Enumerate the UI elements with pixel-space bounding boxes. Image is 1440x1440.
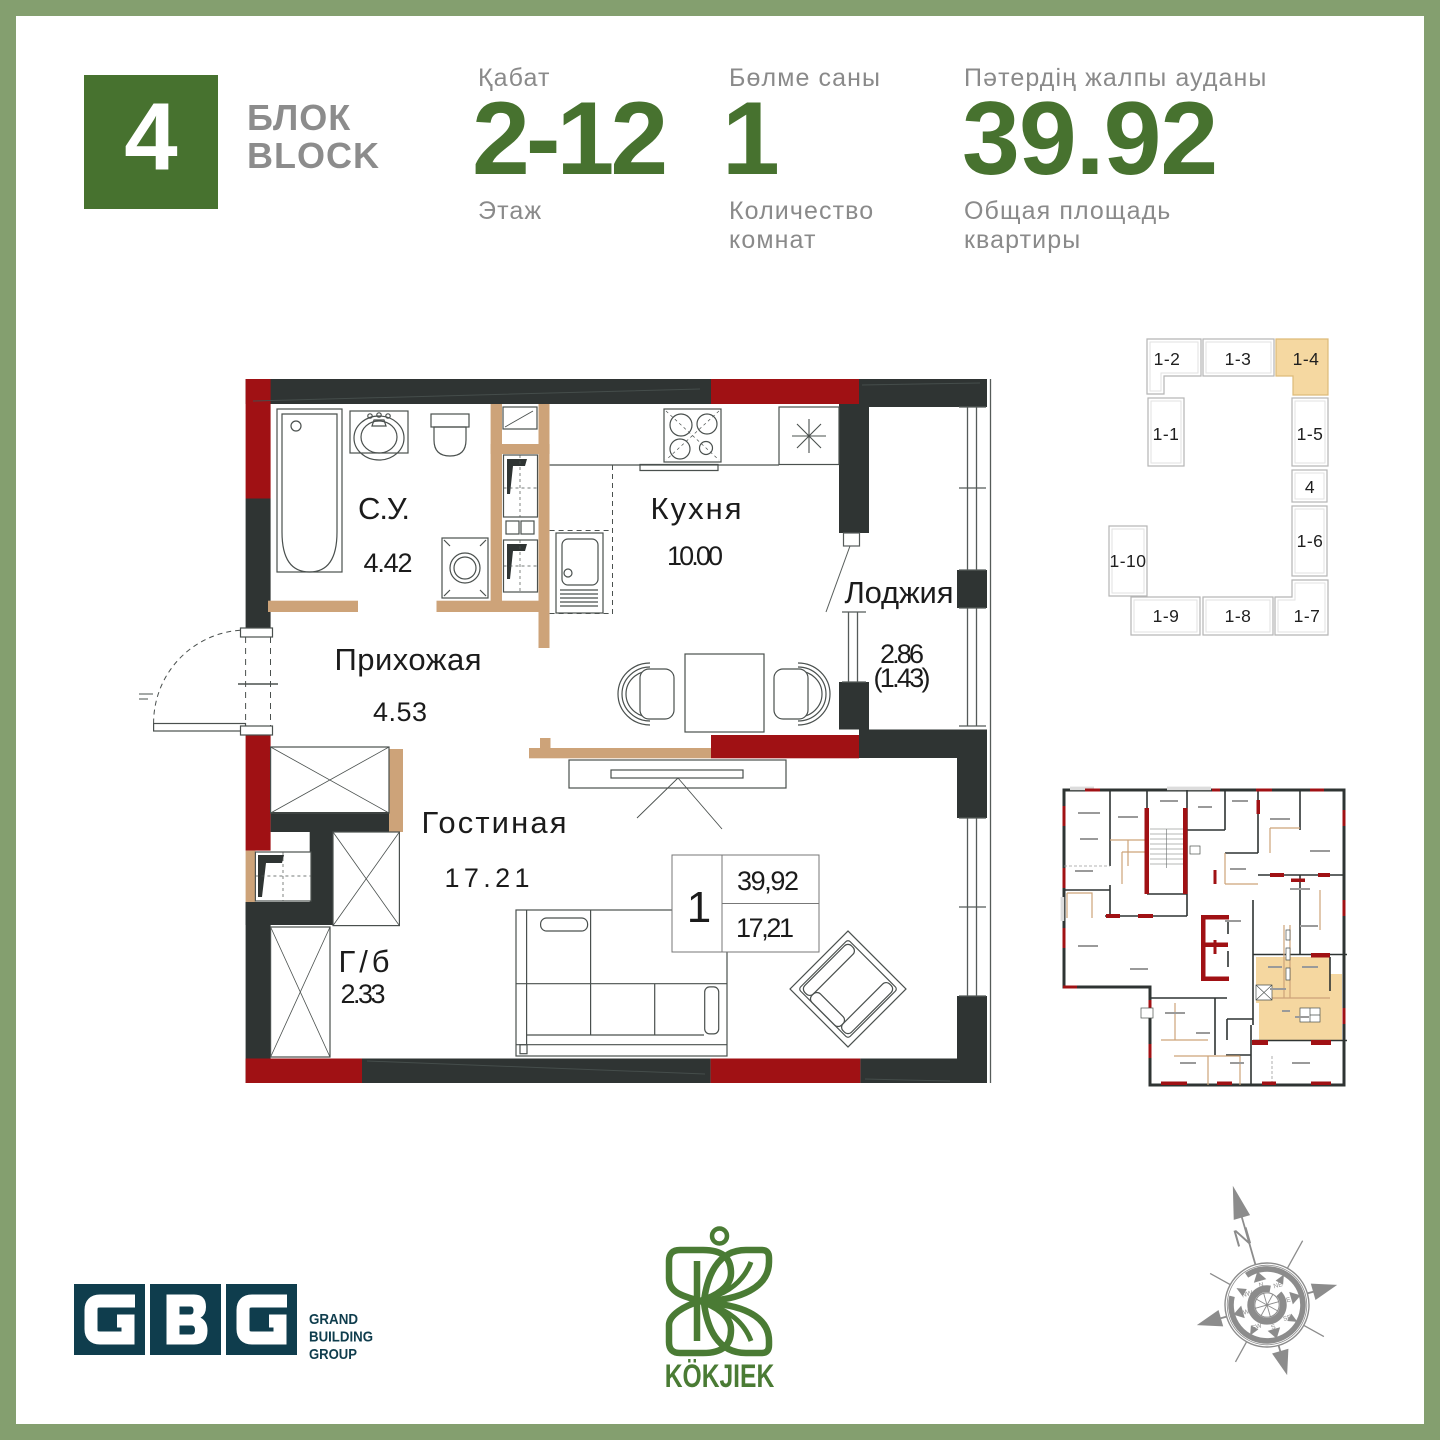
svg-text:2.33: 2.33 — [341, 979, 386, 1009]
svg-text:Лоджия: Лоджия — [845, 575, 954, 610]
svg-text:N: N — [1258, 1281, 1265, 1289]
svg-text:BUILDING: BUILDING — [309, 1329, 373, 1346]
svg-text:4.42: 4.42 — [364, 548, 413, 578]
svg-text:1-4: 1-4 — [1293, 349, 1320, 369]
svg-text:Г/б: Г/б — [339, 944, 390, 979]
svg-text:1-9: 1-9 — [1153, 606, 1180, 626]
svg-text:С.У.: С.У. — [358, 491, 410, 526]
svg-text:1-6: 1-6 — [1297, 531, 1324, 551]
svg-text:1-3: 1-3 — [1225, 349, 1252, 369]
svg-text:1-8: 1-8 — [1225, 606, 1252, 626]
svg-text:Гостиная: Гостиная — [422, 805, 567, 840]
svg-text:4.53: 4.53 — [373, 697, 427, 727]
svg-text:1-7: 1-7 — [1294, 606, 1321, 626]
svg-text:KÖKJIEK: KÖKJIEK — [665, 1359, 775, 1395]
svg-text:GRAND: GRAND — [309, 1311, 358, 1328]
svg-text:Кухня: Кухня — [651, 491, 742, 526]
svg-text:1-1: 1-1 — [1153, 424, 1180, 444]
svg-text:1-5: 1-5 — [1297, 424, 1324, 444]
svg-text:4: 4 — [1305, 477, 1315, 497]
svg-text:17,21: 17,21 — [736, 913, 794, 943]
svg-text:1-10: 1-10 — [1109, 551, 1146, 571]
svg-text:1: 1 — [687, 883, 711, 932]
svg-text:17.21: 17.21 — [445, 863, 530, 893]
svg-text:10.00: 10.00 — [667, 541, 723, 571]
svg-text:39,92: 39,92 — [737, 866, 799, 896]
svg-text:GROUP: GROUP — [309, 1346, 357, 1363]
svg-text:N: N — [1230, 1222, 1254, 1253]
svg-text:Прихожая: Прихожая — [335, 642, 482, 677]
svg-text:(1.43): (1.43) — [874, 663, 931, 693]
svg-text:S: S — [1270, 1323, 1277, 1331]
svg-text:1-2: 1-2 — [1154, 349, 1181, 369]
